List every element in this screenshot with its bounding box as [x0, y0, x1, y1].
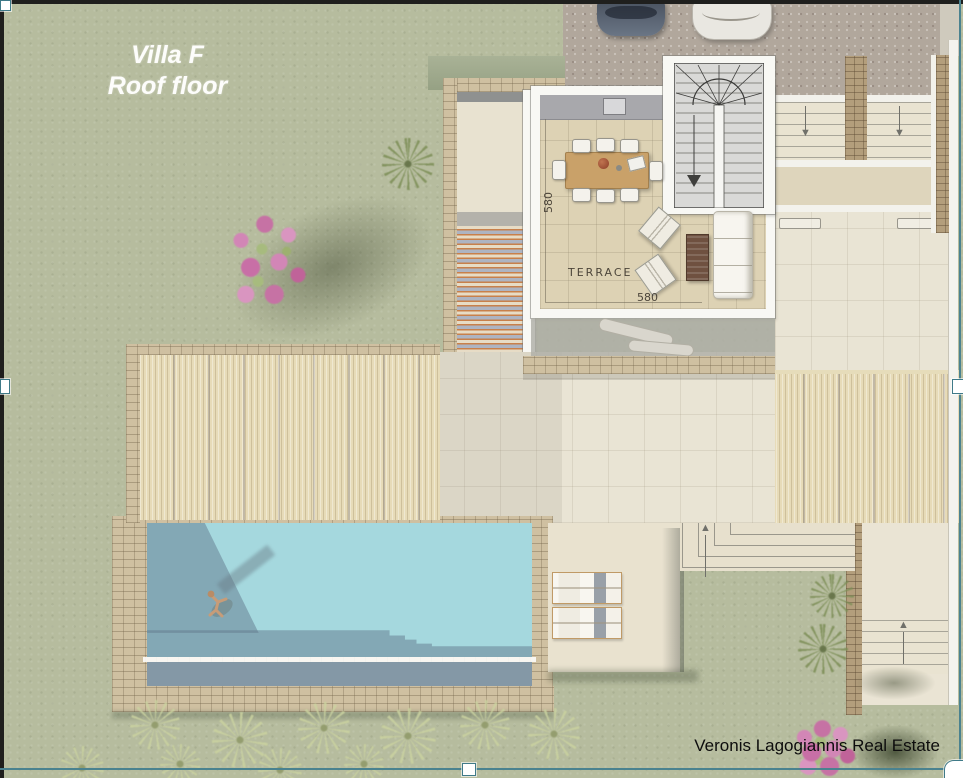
- down-arrow-icon: ▼: [800, 128, 811, 139]
- dining-chair: [572, 139, 591, 153]
- bougainvillea-plant: [222, 208, 317, 316]
- down-arrow-icon: ▼: [894, 128, 905, 139]
- dining-chair: [620, 139, 639, 153]
- palm-plant: [382, 138, 434, 190]
- up-arrow-icon: ▲: [700, 523, 711, 534]
- selection-handle-bottom-middle[interactable]: [462, 763, 476, 776]
- stone-wall-left: [443, 78, 458, 374]
- sofa: [713, 211, 753, 299]
- pergola-stone-beam-top: [126, 344, 440, 355]
- selection-handle-top-left[interactable]: [0, 0, 11, 11]
- title-line1: Villa F: [60, 40, 275, 71]
- dining-chair: [552, 160, 566, 180]
- agave-plant: [344, 744, 384, 778]
- selection-handle-left-middle[interactable]: [0, 379, 10, 394]
- selection-line-bottom: [0, 768, 963, 770]
- up-arrow-icon: ▲: [898, 620, 909, 631]
- room-label-terrace: TERRACE: [568, 266, 632, 279]
- table-plate: [616, 165, 622, 171]
- image-border-top: [0, 0, 963, 4]
- palm-plant: [798, 624, 848, 674]
- left-roof-panel: [457, 92, 531, 214]
- dimension-horizontal-label: 580: [637, 291, 658, 304]
- dimension-line-horizontal: [545, 302, 702, 303]
- agave-plant: [380, 708, 436, 764]
- selection-handle-right-middle[interactable]: [952, 379, 963, 394]
- sun-deck-bottom-shadow: [548, 670, 698, 682]
- planter-slot-left: [779, 218, 821, 229]
- sun-lounger: [552, 572, 622, 604]
- garden-step-line: [730, 523, 855, 535]
- agave-plant: [130, 700, 180, 750]
- counter-sink: [603, 98, 626, 115]
- dining-chair: [620, 188, 639, 202]
- dining-chair: [596, 189, 615, 203]
- agave-plant: [298, 702, 350, 754]
- garden-steps-stem: [705, 535, 706, 577]
- selection-handle-bottom-right[interactable]: [944, 760, 963, 778]
- pergola-stone-beam-left: [126, 344, 140, 523]
- sun-lounger: [552, 607, 622, 639]
- main-pergola-roof: [140, 355, 440, 520]
- right-boundary-wall: [948, 40, 958, 705]
- agave-plant: [160, 744, 200, 778]
- car-white-windshield: [702, 4, 760, 21]
- coffee-table: [686, 234, 709, 281]
- page-title: Villa F Roof floor: [60, 40, 275, 102]
- terrace-cast-shadow: [523, 374, 775, 380]
- stone-wall-top-right: [936, 55, 949, 233]
- swimmer-icon: [198, 586, 238, 622]
- villa-roof-floorplan-image: ▼ ▼ ▲ ▲: [0, 0, 963, 778]
- agave-plant: [460, 700, 510, 750]
- lower-right-stairs-stem: [903, 632, 904, 664]
- dining-chair: [649, 161, 663, 181]
- watermark-text: Veronis Lagogiannis Real Estate: [600, 736, 940, 756]
- lower-right-shadow: [852, 666, 936, 700]
- stone-wall-below-terrace: [523, 356, 775, 374]
- right-pergola-roof: [770, 374, 960, 523]
- striped-deck: [457, 226, 531, 352]
- dimension-vertical-label: 580: [542, 192, 555, 213]
- title-line2: Roof floor: [60, 71, 275, 102]
- upper-right-patio: [775, 212, 958, 373]
- dining-chair: [572, 188, 591, 202]
- dining-chair: [596, 138, 615, 152]
- agave-plant: [528, 708, 580, 760]
- car-dark-windshield: [605, 6, 657, 19]
- staircase: [674, 63, 764, 208]
- table-pot: [598, 158, 609, 169]
- palm-plant: [810, 574, 854, 618]
- left-gray-ledge: [457, 212, 531, 226]
